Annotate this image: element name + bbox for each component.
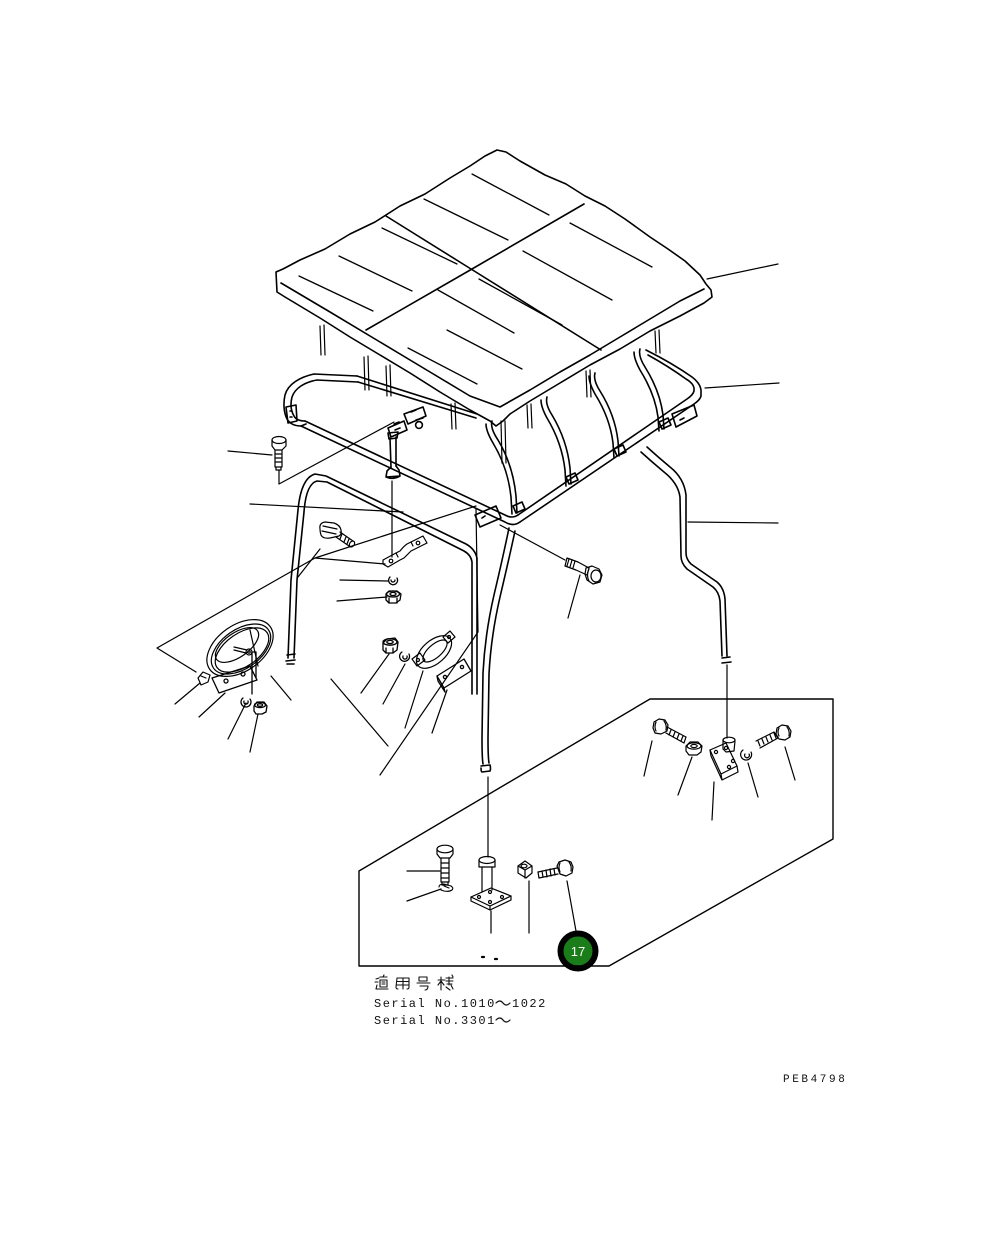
svg-text:1022: 1022 xyxy=(512,997,547,1011)
svg-text:Serial No.3301: Serial No.3301 xyxy=(374,1014,496,1028)
svg-text:PEB4798: PEB4798 xyxy=(783,1074,847,1086)
svg-text:Serial No.1010: Serial No.1010 xyxy=(374,997,496,1011)
svg-text:17: 17 xyxy=(571,944,585,959)
